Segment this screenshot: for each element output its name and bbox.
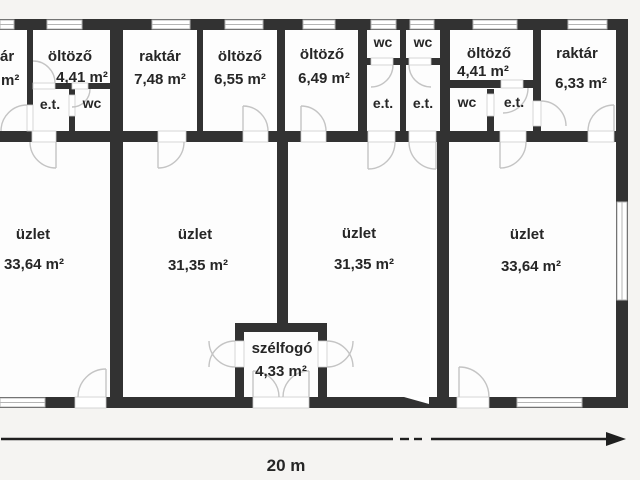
- door-opening: [158, 131, 186, 142]
- door-opening: [457, 397, 489, 408]
- room-label-raktar-748: raktár: [139, 48, 181, 65]
- room-area-oltozo-655: 6,55 m²: [214, 71, 266, 88]
- window: [517, 398, 582, 407]
- window: [0, 20, 14, 29]
- wall-szelfogo-top: [235, 323, 327, 332]
- room-area-raktar-633: 6,33 m²: [555, 75, 607, 92]
- room-area-oltozo-right: 4,41 m²: [457, 63, 509, 80]
- window: [371, 20, 396, 29]
- wall-v7-thick: [440, 30, 450, 131]
- room-area-raktar-748: 7,48 m²: [134, 71, 186, 88]
- room-label-uzlet-2: üzlet: [178, 226, 212, 243]
- door-opening: [33, 83, 55, 89]
- room-label-oltozo-left: öltöző: [48, 48, 92, 65]
- door-opening: [27, 105, 33, 131]
- room-label-oltozo-655: öltöző: [218, 48, 262, 65]
- window: [473, 20, 517, 29]
- room-area-uzlet-1: 33,64 m²: [4, 256, 64, 273]
- room-label-wc-mid-2: wc: [413, 34, 433, 50]
- door-opening: [75, 397, 106, 408]
- window: [225, 20, 263, 29]
- room-area-szelfogo: 4,33 m²: [255, 363, 307, 380]
- room-area-oltozo-left: 4,41 m²: [56, 69, 108, 86]
- room-label-et-mid-2: e.t.: [413, 95, 433, 111]
- door-opening: [500, 131, 526, 142]
- door-opening: [533, 101, 541, 126]
- window: [303, 20, 335, 29]
- room-label-raktar-partial: ár: [0, 48, 14, 65]
- floor-plan-page: ár m² öltöző 4,41 m² e.t. wc raktár 7,48…: [0, 0, 640, 480]
- room-label-et-right: e.t.: [504, 94, 524, 110]
- room-label-szelfogo: szélfogó: [252, 340, 313, 357]
- door-opening: [371, 58, 393, 65]
- wall-v3: [197, 30, 203, 131]
- wall-v2-thick: [110, 30, 123, 131]
- window: [410, 20, 434, 29]
- room-label-et-left: e.t.: [40, 96, 60, 112]
- window: [0, 398, 45, 407]
- floor-plan-drawing: ár m² öltöző 4,41 m² e.t. wc raktár 7,48…: [0, 0, 640, 480]
- room-label-raktar-633: raktár: [556, 45, 598, 62]
- door-opening: [235, 341, 244, 367]
- door-opening: [501, 80, 523, 88]
- room-label-wc-mid-1: wc: [373, 34, 393, 50]
- room-label-oltozo-649: öltöző: [300, 46, 344, 63]
- room-area-oltozo-649: 6,49 m²: [298, 70, 350, 87]
- door-opening: [318, 341, 327, 367]
- door-opening: [243, 131, 268, 142]
- room-area-uzlet-4: 33,64 m²: [501, 258, 561, 275]
- room-label-oltozo-right: öltöző: [467, 45, 511, 62]
- wall-v4: [277, 30, 285, 131]
- room-area-uzlet-2: 31,35 m²: [168, 257, 228, 274]
- door-opening: [32, 131, 56, 142]
- window: [152, 20, 190, 29]
- wall-uzlet-2-3: [277, 142, 288, 332]
- window: [568, 20, 607, 29]
- door-opening: [368, 131, 395, 142]
- door-opening: [409, 131, 436, 142]
- window: [617, 202, 627, 300]
- wall-uzlet-3-4: [437, 142, 449, 397]
- wall-v6: [400, 30, 406, 131]
- door-closed-leaf: [487, 94, 494, 116]
- window: [47, 20, 82, 29]
- dimension-annotation: [1, 432, 626, 446]
- door-closed-leaf: [69, 95, 75, 116]
- room-label-uzlet-3: üzlet: [342, 225, 376, 242]
- wall-uzlet-1-2: [110, 142, 123, 397]
- door-opening: [253, 397, 309, 408]
- dimension-label: 20 m: [267, 456, 306, 475]
- door-opening: [301, 131, 326, 142]
- room-label-wc-left: wc: [82, 95, 102, 111]
- room-area-uzlet-3: 31,35 m²: [334, 256, 394, 273]
- wall-v5: [358, 30, 367, 131]
- room-area-raktar-partial: m²: [1, 72, 19, 89]
- door-opening: [588, 131, 614, 142]
- dimension-arrow-icon: [606, 432, 626, 446]
- room-label-uzlet-4: üzlet: [510, 226, 544, 243]
- room-label-et-mid-1: e.t.: [373, 95, 393, 111]
- door-opening: [409, 58, 431, 65]
- room-label-uzlet-1: üzlet: [16, 226, 50, 243]
- room-label-wc-right: wc: [457, 94, 477, 110]
